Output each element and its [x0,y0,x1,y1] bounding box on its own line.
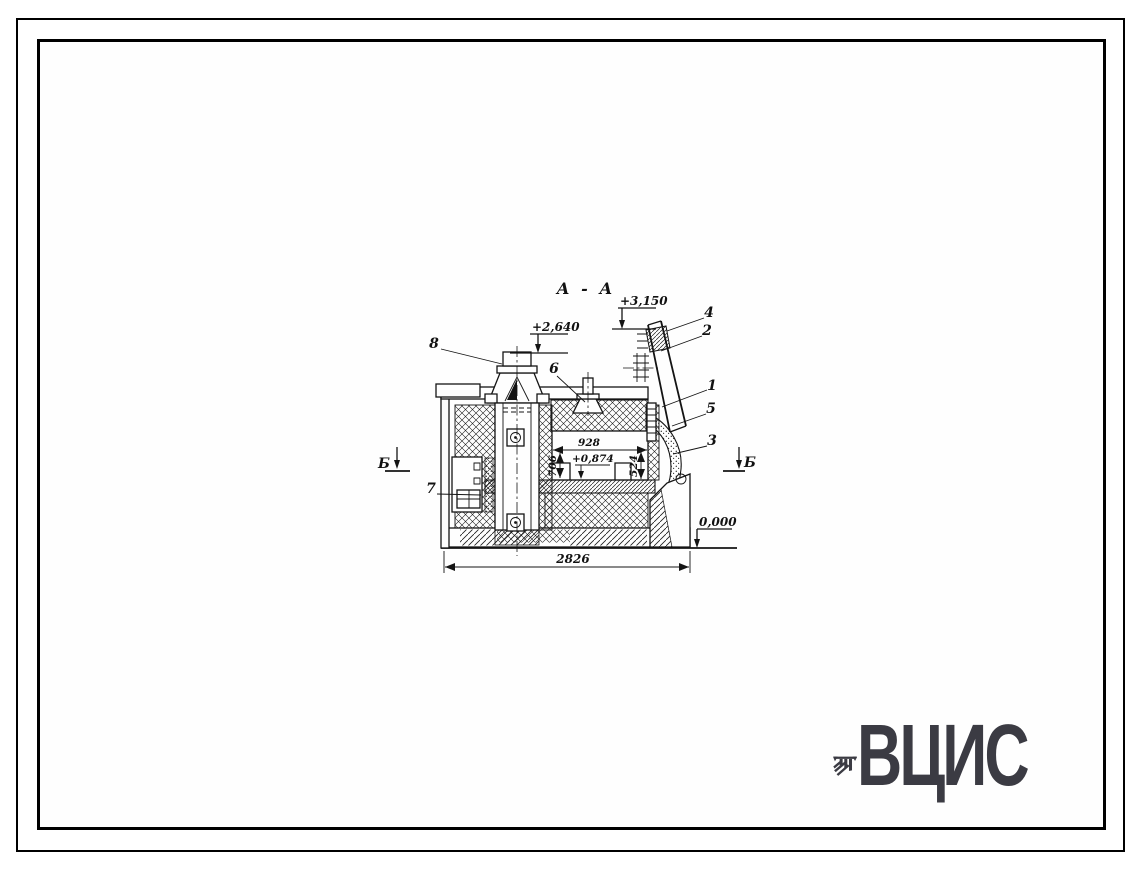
section-letter-left: Б [377,456,390,472]
chimney-tower [485,346,549,556]
callout-6: 6 [549,361,559,377]
dimension-overall-width-value: 2826 [555,552,590,566]
section-mark-left: Б [377,447,410,472]
guide-bracket [633,353,649,382]
elevation-chute-top-value: +3,150 [620,294,668,308]
callout-1: 1 [707,378,717,394]
section-letter-right: Б [743,455,756,471]
callout-5: 5 [706,401,716,417]
vcis-watermark: ВЦИС [833,716,1093,806]
callout-3: 3 [707,433,717,449]
dimension-chamber-height-right: 524 [628,452,641,479]
elevation-chimney-top-value: +2,640 [532,320,580,334]
vcis-emblem-icon [833,726,857,806]
dimension-chamber-height-right-value: 524 [628,455,640,477]
leader-1 [662,390,707,407]
right-pedestal [650,474,690,547]
sub-hearth-masonry [545,493,648,528]
elevation-ground: 0,000 [694,515,737,548]
chute-top-hopper [646,326,670,352]
leader-4 [667,318,704,331]
section-title: А - А [556,279,616,298]
callout-8: 8 [429,336,439,352]
top-left-cornice [436,384,480,397]
callout-7: 7 [426,481,436,497]
dimension-overall-width: 2826 [444,551,690,573]
dimension-chamber-width-value: 928 [578,437,601,449]
dimension-chamber-height-left: 706 [547,453,560,478]
left-casing-column [441,388,449,548]
section-mark-right: Б [723,447,756,471]
upper-bolt-dot [514,436,517,439]
lower-bolt-dot [514,521,517,524]
chimney-hood-left-wing [485,394,497,403]
foundation-hatch-left [460,530,497,546]
hopper-bolt-dashes [637,334,648,348]
callout-4: 4 [704,305,714,321]
leader-8 [441,349,502,364]
elevation-chimney-top: +2,640 [510,320,580,353]
dimension-chamber-height-left-value: 706 [547,454,559,477]
elevation-ground-value: 0,000 [699,515,737,529]
roof-stack [573,372,603,416]
elevation-chute-top: +3,150 [612,294,668,329]
chimney-hood-right-wing [537,394,549,403]
elevation-hearth-value: +0,874 [572,453,614,465]
callout-2: 2 [701,323,712,339]
leader-5 [672,414,706,426]
foundation-hatch-right [570,530,647,546]
scanned-drawing-page: { "drawing": { "title": "А - А", "sectio… [0,0,1139,869]
vcis-logo-text: ВЦИС [857,716,1027,796]
